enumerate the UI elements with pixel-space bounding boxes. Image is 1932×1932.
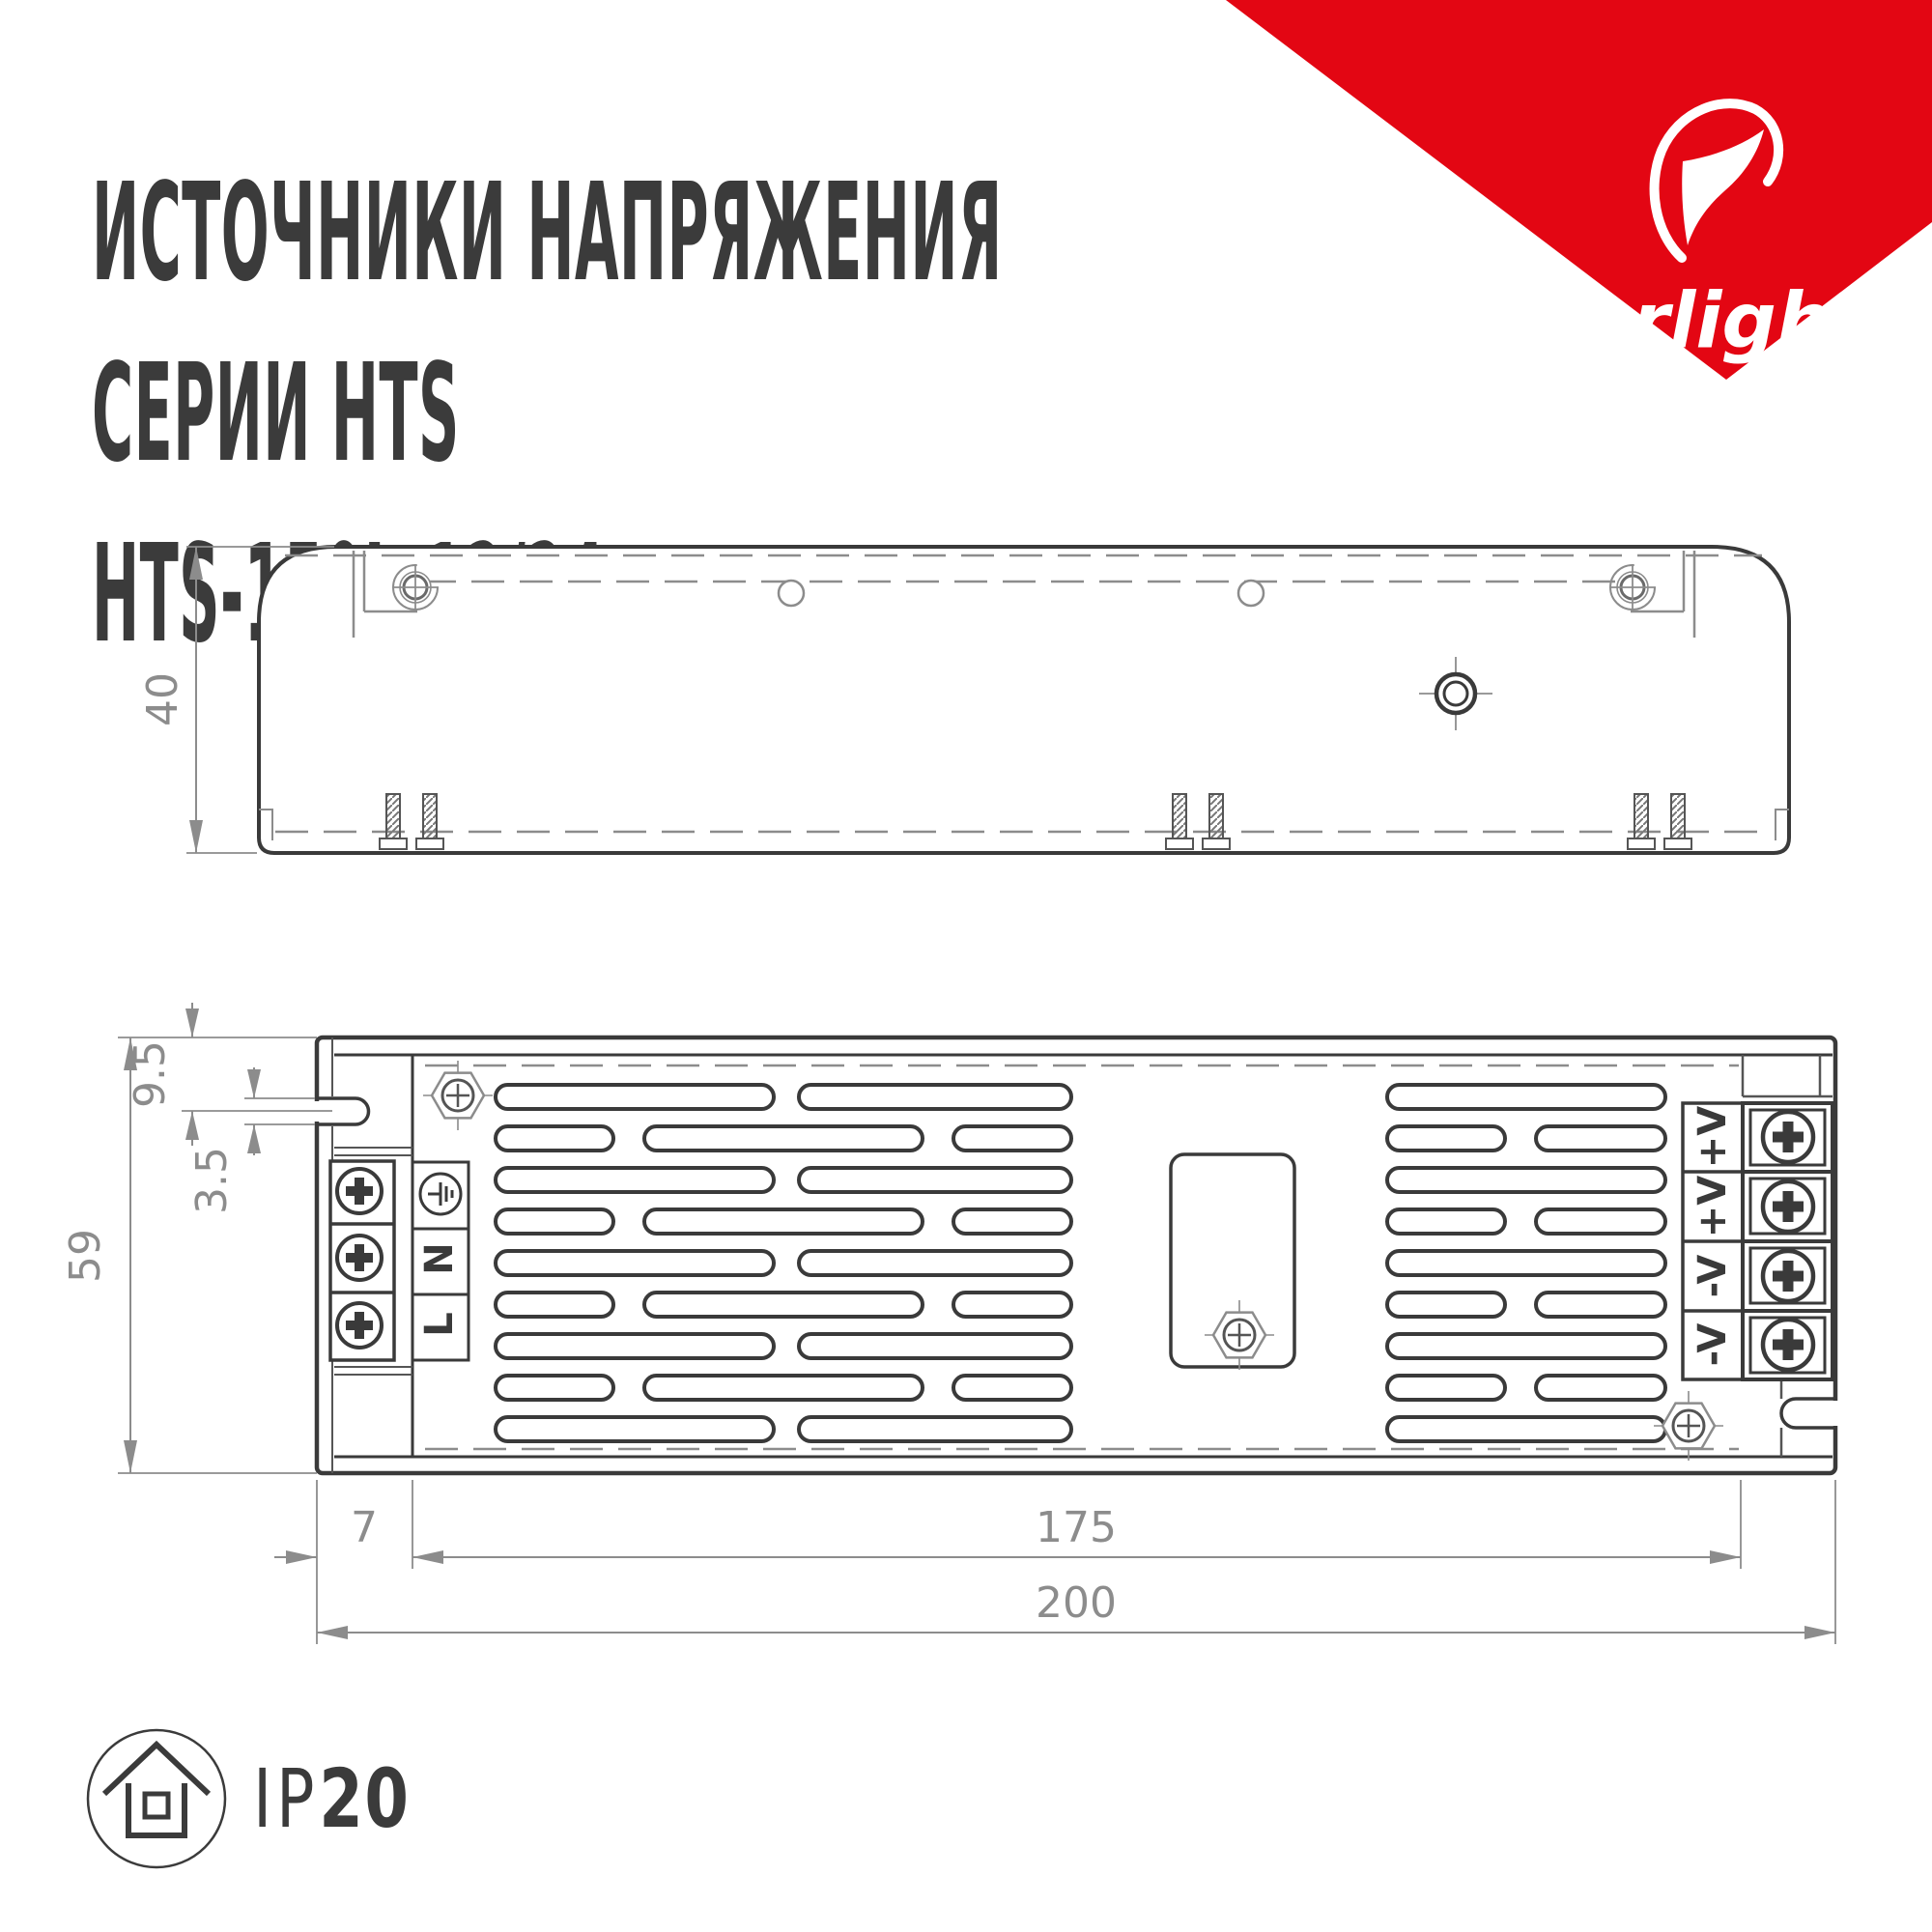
top-view-drawing: N L +V +V -V -V	[61, 1003, 1842, 1644]
house-window-icon	[145, 1794, 168, 1817]
dim-label-59: 59	[61, 1229, 110, 1283]
terminal-screw-icon	[1750, 1179, 1825, 1234]
side-hole-icon	[1238, 581, 1264, 606]
terminal-screw-icon	[1750, 1248, 1825, 1303]
ip-rating: IP20	[253, 1758, 411, 1839]
terminal-screw-icon	[337, 1303, 382, 1348]
side-hole-icon	[779, 581, 804, 606]
ip-prefix: IP	[253, 1751, 319, 1846]
side-case-outline	[259, 547, 1789, 853]
house-body-icon	[128, 1783, 185, 1835]
terminal-label-minusv-1: -V	[1690, 1255, 1735, 1298]
terminal-screw-icon	[1750, 1110, 1825, 1165]
house-roof-icon	[104, 1745, 209, 1794]
dim-label-40: 40	[138, 672, 187, 726]
dimension-59: 59	[61, 1037, 317, 1473]
input-terminal-labels: N L	[412, 1162, 469, 1360]
output-terminal-block	[1743, 1103, 1833, 1379]
output-terminal-labels: +V +V -V -V	[1683, 1103, 1743, 1379]
dim-label-3-5: 3.5	[187, 1147, 237, 1214]
terminal-screw-icon	[337, 1169, 382, 1213]
dim-label-175: 175	[1036, 1503, 1117, 1552]
terminal-screw-icon	[337, 1236, 382, 1280]
dimension-3-5: 3.5	[187, 1067, 261, 1214]
terminal-label-l: L	[417, 1312, 462, 1337]
terminal-label-plusv-1: +V	[1690, 1106, 1735, 1169]
dim-label-200: 200	[1036, 1578, 1117, 1628]
technical-drawing: 40	[0, 0, 1932, 1932]
terminal-label-n: N	[417, 1242, 462, 1274]
dim-label-9-5: 9.5	[126, 1040, 175, 1108]
terminal-label-plusv-2: +V	[1690, 1176, 1735, 1238]
bottom-dimensions: 7 175 200	[274, 1480, 1835, 1644]
terminal-screw-icon	[1750, 1318, 1825, 1373]
dim-label-7: 7	[351, 1503, 378, 1552]
ip20-indoor-icon	[88, 1730, 225, 1867]
input-terminal-block	[330, 1161, 394, 1360]
terminal-label-minusv-2: -V	[1690, 1323, 1735, 1367]
ip-value: 20	[319, 1751, 410, 1846]
side-view-drawing: 40	[138, 547, 1789, 853]
